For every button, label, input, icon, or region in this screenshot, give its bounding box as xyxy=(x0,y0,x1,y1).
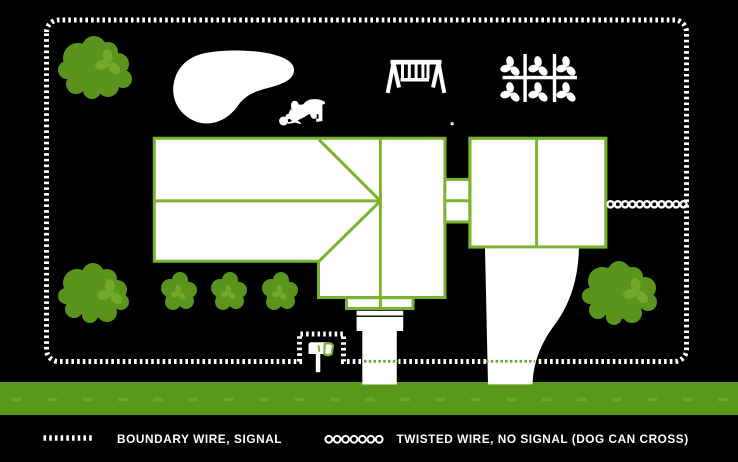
svg-text:BOUNDARY WIRE, SIGNAL: BOUNDARY WIRE, SIGNAL xyxy=(117,432,282,446)
svg-text:TWISTED WIRE, NO SIGNAL (DOG C: TWISTED WIRE, NO SIGNAL (DOG CAN CROSS) xyxy=(397,432,689,446)
